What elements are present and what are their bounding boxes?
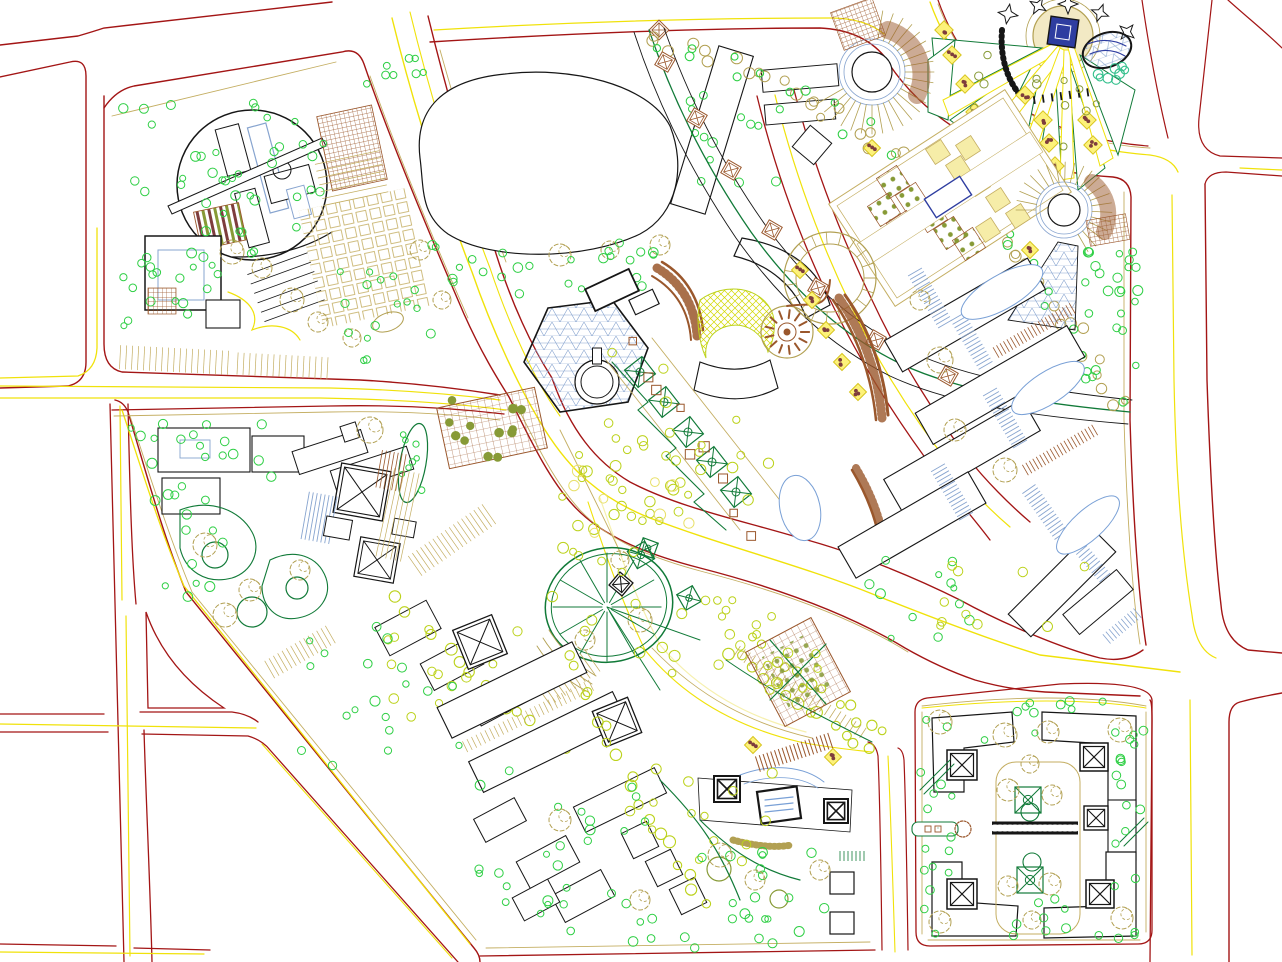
sr-house-e2	[830, 912, 854, 934]
spiral-ramp-stem	[593, 348, 602, 364]
lake-outline	[419, 72, 678, 254]
wr-annex-1	[323, 516, 352, 540]
sr-house-e1	[830, 872, 854, 894]
pool-tower-w	[714, 776, 740, 802]
se-tower-nw	[947, 750, 977, 780]
fountain2-inner	[1048, 194, 1080, 226]
se-tower-sw	[947, 879, 977, 909]
sundial-center	[784, 329, 791, 336]
site-plan-canvas[interactable]	[0, 0, 1282, 962]
se-tower-e	[1084, 806, 1108, 830]
se-tower-se	[1086, 880, 1114, 908]
pool-tower-e	[824, 799, 848, 823]
star-pavilion-blue	[1047, 16, 1079, 48]
villa-annex	[206, 300, 240, 328]
wr-tower-1	[333, 463, 391, 521]
se-tower-ne	[1080, 743, 1108, 771]
spiral-ramp-outer	[575, 360, 619, 404]
cad-viewport[interactable]	[0, 0, 1282, 962]
fountain1-inner	[852, 52, 892, 92]
wr-tower-2	[354, 537, 400, 583]
